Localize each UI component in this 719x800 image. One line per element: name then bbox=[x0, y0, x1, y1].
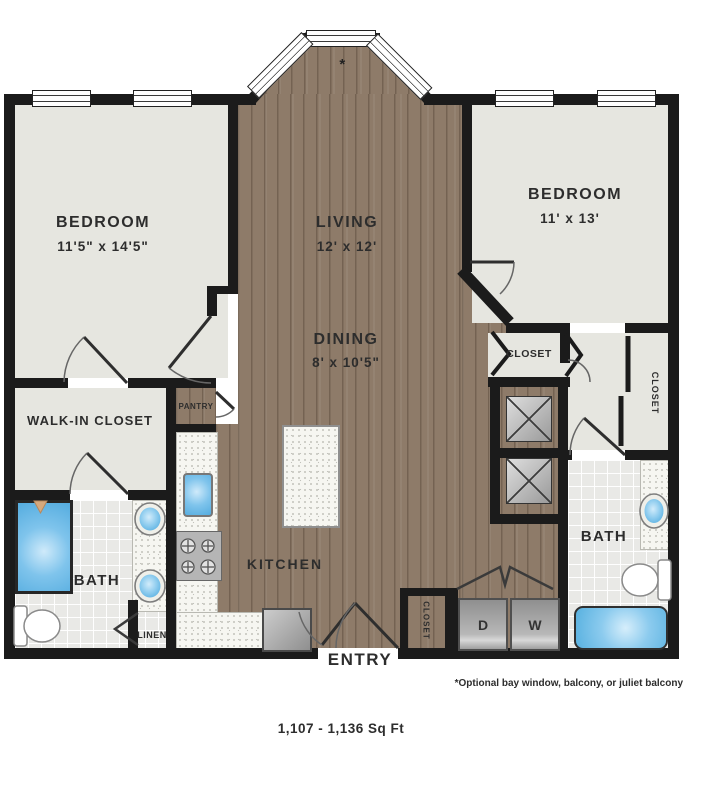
sink-vanity-left-2 bbox=[135, 570, 165, 602]
room-label-walkin-closet: WALK-IN CLOSET bbox=[20, 413, 160, 428]
room-label-bedroom-left: BEDROOM bbox=[28, 214, 178, 232]
sink-vanity-left-1 bbox=[135, 503, 165, 535]
area-text: 1,107 - 1,136 Sq Ft bbox=[241, 721, 441, 736]
room-label-entry: ENTRY bbox=[320, 650, 400, 670]
toilet-left bbox=[14, 606, 60, 646]
laundry-bifold-door bbox=[457, 567, 553, 589]
room-label-closet-bedroom2: CLOSET bbox=[489, 348, 569, 360]
window-bedroom-left-1 bbox=[32, 90, 91, 107]
room-label-bath-left: BATH bbox=[62, 572, 132, 589]
room-label-pantry: PANTRY bbox=[174, 402, 218, 411]
room-label-living: LIVING bbox=[272, 214, 422, 232]
dim-label-bedroom-left: 11'5" x 14'5" bbox=[28, 239, 178, 254]
room-label-closet-entry: CLOSET bbox=[422, 596, 431, 646]
room-label-closet-hall: CLOSET bbox=[650, 366, 660, 420]
stove-burners bbox=[181, 539, 215, 574]
wall-bedroom-right-diagonal bbox=[465, 274, 506, 318]
room-label-linen: LINEN bbox=[136, 630, 168, 640]
closet2-sliding-door bbox=[621, 336, 628, 446]
footnote: *Optional bay window, balcony, or juliet… bbox=[440, 678, 683, 689]
dim-label-bedroom-right: 11' x 13' bbox=[500, 211, 640, 226]
linen-door-jamb bbox=[115, 613, 138, 645]
bay-asterisk: * bbox=[336, 56, 350, 73]
sink-vanity-right bbox=[640, 494, 668, 528]
room-label-bath-right: BATH bbox=[569, 528, 639, 545]
room-label-kitchen: KITCHEN bbox=[235, 556, 335, 572]
room-label-dining: DINING bbox=[271, 331, 421, 349]
floorplan: D W bbox=[0, 0, 719, 800]
room-label-bedroom-right: BEDROOM bbox=[500, 186, 650, 204]
toilet-right bbox=[622, 560, 671, 600]
window-bedroom-right-1 bbox=[495, 90, 554, 107]
dim-label-living: 12' x 12' bbox=[272, 239, 422, 254]
window-bedroom-left-2 bbox=[133, 90, 192, 107]
shower-head-icon bbox=[34, 501, 47, 513]
dim-label-dining: 8' x 10'5" bbox=[271, 355, 421, 370]
window-bedroom-right-2 bbox=[597, 90, 656, 107]
